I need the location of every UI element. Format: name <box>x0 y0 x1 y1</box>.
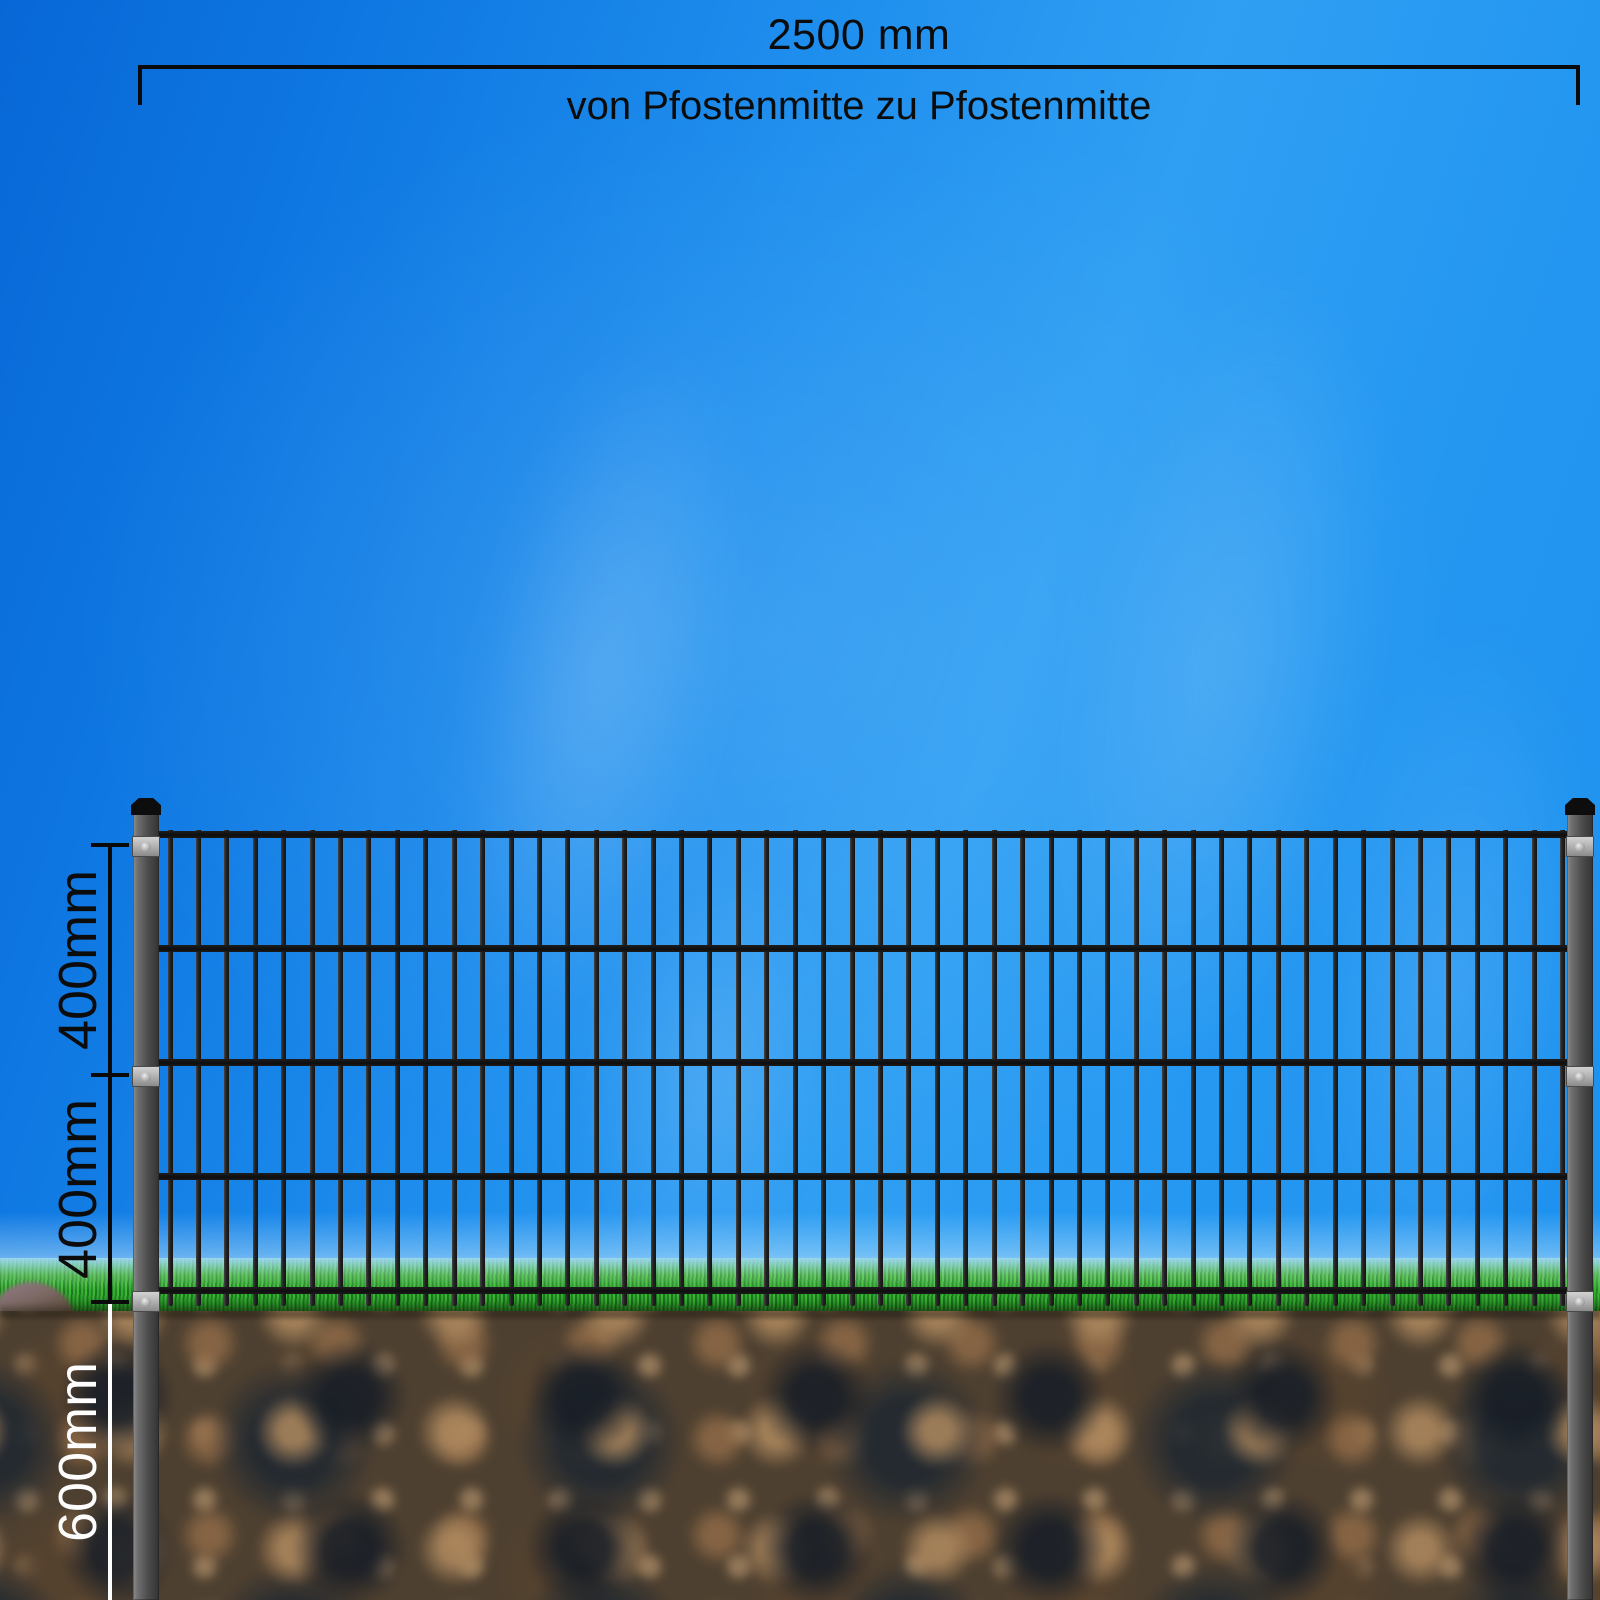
post-clamp-right <box>1566 836 1594 857</box>
vertical-bar <box>366 830 371 1306</box>
vertical-bar <box>1247 830 1252 1306</box>
vertical-bar <box>651 830 656 1306</box>
fence-panel <box>158 830 1568 1307</box>
vertical-bar <box>850 830 855 1306</box>
vertical-bar <box>395 830 400 1306</box>
soil-texture <box>0 1311 1600 1600</box>
vertical-bar <box>1532 830 1537 1306</box>
vertical-bar <box>1446 830 1451 1306</box>
post-clamp-left <box>132 1066 160 1087</box>
vertical-bar <box>310 830 315 1306</box>
vertical-bar <box>224 830 229 1306</box>
vertical-bar <box>821 830 826 1306</box>
vertical-bar <box>338 830 343 1306</box>
clamp-screw <box>1575 1297 1585 1307</box>
vertical-bar <box>1105 830 1110 1306</box>
horizontal-wire <box>158 1287 1568 1294</box>
top-dimension-label: 2500 mm <box>138 11 1580 60</box>
vertical-bar <box>168 830 173 1306</box>
clamp-screw <box>1575 1072 1585 1082</box>
vertical-bar <box>764 830 769 1306</box>
clamp-screw <box>1575 842 1585 852</box>
post-clamp-left <box>132 1291 160 1312</box>
vertical-bar <box>707 830 712 1306</box>
vertical-bar <box>679 830 684 1306</box>
vertical-bar <box>1304 830 1309 1306</box>
vertical-bar <box>1162 830 1167 1306</box>
top-dimension-line <box>138 65 1580 69</box>
vertical-bar <box>1361 830 1366 1306</box>
top-dimension-sublabel: von Pfostenmitte zu Pfostenmitte <box>138 84 1580 129</box>
vertical-bar <box>1333 830 1338 1306</box>
horizontal-wire <box>158 945 1568 952</box>
vertical-bar <box>736 830 741 1306</box>
vertical-bar <box>1219 830 1224 1306</box>
lower-panel-height-label: 400mm <box>46 1075 110 1303</box>
soil-ground <box>0 1311 1600 1600</box>
vertical-bar <box>1503 830 1508 1306</box>
post-depth-label: 600mm <box>46 1303 110 1600</box>
upper-panel-height-label: 400mm <box>46 845 110 1075</box>
vertical-bar <box>1191 830 1196 1306</box>
post-clamp-left <box>132 836 160 857</box>
vertical-bar <box>480 830 485 1306</box>
fence-post-right <box>1567 814 1593 1600</box>
vertical-bar <box>452 830 457 1306</box>
vertical-bar <box>537 830 542 1306</box>
horizontal-wire <box>158 1173 1568 1180</box>
vertical-bar <box>992 830 997 1306</box>
fence-dimension-diagram: 2500 mm von Pfostenmitte zu Pfostenmitte… <box>0 0 1600 1600</box>
vertical-bar <box>509 830 514 1306</box>
vertical-bar <box>1390 830 1395 1306</box>
post-clamp-right <box>1566 1066 1594 1087</box>
clamp-screw <box>141 1072 151 1082</box>
vertical-bar <box>1418 830 1423 1306</box>
vertical-bar <box>281 830 286 1306</box>
vertical-bar <box>935 830 940 1306</box>
vertical-bar <box>253 830 258 1306</box>
vertical-bar <box>423 830 428 1306</box>
clamp-screw <box>141 842 151 852</box>
vertical-bar <box>594 830 599 1306</box>
vertical-bar <box>1475 830 1480 1306</box>
post-clamp-right <box>1566 1291 1594 1312</box>
vertical-bar <box>963 830 968 1306</box>
vertical-bar <box>793 830 798 1306</box>
vertical-bar <box>878 830 883 1306</box>
vertical-bar <box>1020 830 1025 1306</box>
vertical-bar <box>1276 830 1281 1306</box>
clamp-screw <box>141 1297 151 1307</box>
vertical-bar <box>1134 830 1139 1306</box>
fence-post-left <box>133 814 159 1600</box>
vertical-bar <box>1077 830 1082 1306</box>
horizontal-wire <box>158 831 1568 838</box>
vertical-bar <box>622 830 627 1306</box>
vertical-bar <box>906 830 911 1306</box>
vertical-bar <box>565 830 570 1306</box>
vertical-bar <box>1049 830 1054 1306</box>
horizontal-wire <box>158 1059 1568 1066</box>
vertical-bar <box>196 830 201 1306</box>
vertical-bar <box>1560 830 1565 1306</box>
